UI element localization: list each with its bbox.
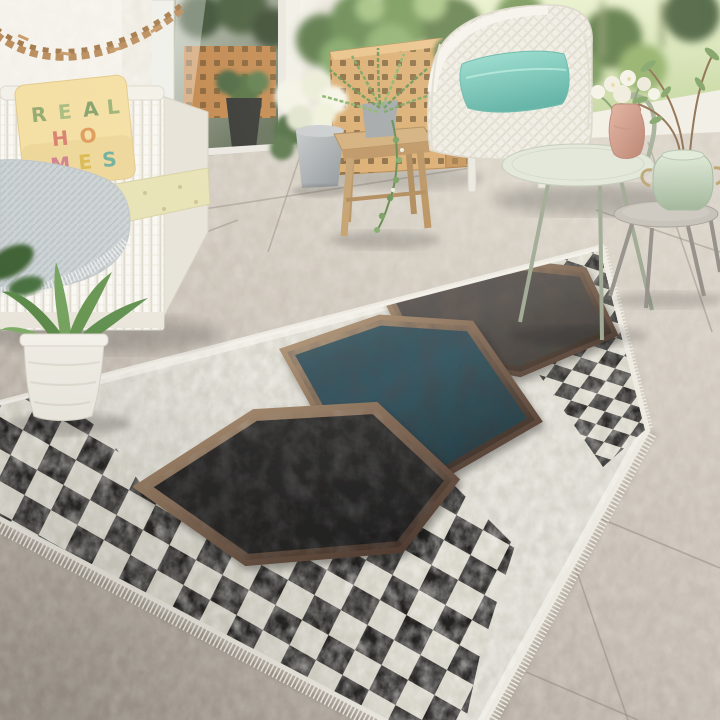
corner-vignette	[0, 0, 720, 720]
patio-scene-photo: R E A L H O M E S	[0, 0, 720, 720]
scene-canvas: R E A L H O M E S	[0, 0, 720, 720]
